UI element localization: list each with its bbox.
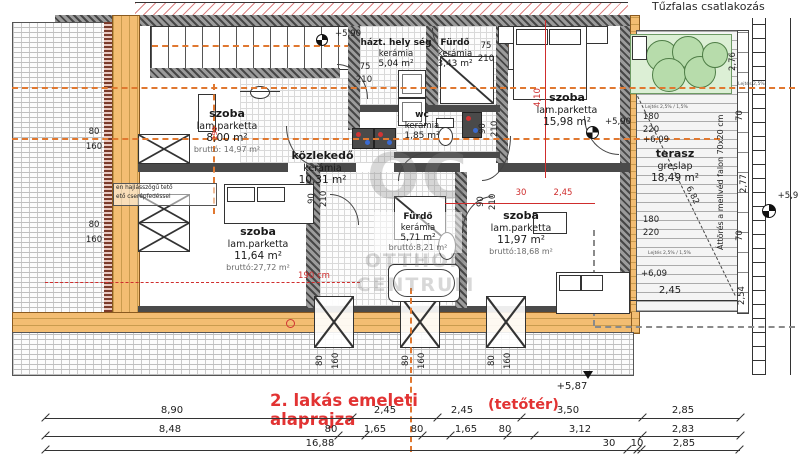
note-roof-line2: ető cserépfedéssel xyxy=(116,193,216,202)
room-area: 8,00 m² xyxy=(162,132,292,144)
level-590-szoba-tr: +5,90 xyxy=(598,118,638,127)
dim-180: 180 xyxy=(636,113,666,122)
level-triangle-icon xyxy=(583,371,593,379)
room-floor: lam.parketta xyxy=(162,121,292,132)
dim-row1-val: 2,45 xyxy=(365,405,405,416)
room-name: szoba xyxy=(162,108,292,121)
dim-277: 2,77 xyxy=(740,166,749,202)
dim-row3-val: 30 xyxy=(598,438,620,449)
note-slope-b: Lejtés 2,5% / 1,5% xyxy=(648,251,706,256)
dim-160: 160 xyxy=(80,236,108,245)
dim-row2-val: 2,83 xyxy=(663,424,703,435)
room-area: 5,71 m² xyxy=(374,233,462,244)
dim-row3-val: 2,85 xyxy=(663,438,705,449)
dim-80: 80 xyxy=(488,348,497,374)
room-name: terasz xyxy=(626,148,724,161)
dim-row3-val: 16,88 xyxy=(298,438,342,449)
room-name: wc xyxy=(392,110,452,121)
room-label-terasz: terasz greslap 18,49 m² xyxy=(626,148,724,185)
nightstand xyxy=(586,26,608,44)
level-marker-icon xyxy=(762,204,776,218)
room-label-wc: wc kerámia 1,85 m² xyxy=(392,110,452,141)
section-marker-line xyxy=(240,91,280,92)
pillow xyxy=(549,29,581,45)
pillow xyxy=(257,187,285,202)
pillow xyxy=(227,187,255,202)
room-floor: lam.parketta xyxy=(196,239,320,250)
tree xyxy=(702,42,728,68)
room-name: Fürdő xyxy=(374,212,462,223)
nightstand xyxy=(498,26,514,44)
purlin-axis-line xyxy=(12,138,720,140)
dim-210: 210 xyxy=(491,112,500,146)
dim-190-red: 190 xyxy=(212,118,219,148)
terrace-245-dimline xyxy=(630,300,737,301)
dim-row1-val: 2,85 xyxy=(663,405,703,416)
level-marker-icon xyxy=(586,126,599,139)
dim-220: 220 xyxy=(636,126,666,135)
level-59-right: +5,9 xyxy=(776,192,800,201)
dim-80: 80 xyxy=(316,348,325,374)
dim-70: 70 xyxy=(736,104,745,128)
dim-90: 90 xyxy=(479,112,488,146)
pillow xyxy=(516,29,548,45)
dim-80: 80 xyxy=(82,128,106,137)
wall-below-stairs xyxy=(150,68,340,78)
roof-window xyxy=(314,296,354,348)
watermark-line2: CENTRUM xyxy=(354,274,478,296)
room-floor: kerámia xyxy=(392,121,452,131)
dim-160: 160 xyxy=(332,346,341,376)
note-tuzfalas: Tűzfalas csatlakozás xyxy=(652,0,798,13)
note-slope-a: Lejtés 2,5% / 1,5% xyxy=(645,105,703,110)
watermark-line1: OTTHON xyxy=(356,250,476,272)
dim-row2-val: 80 xyxy=(492,424,518,435)
dim-410-red: 4,10 xyxy=(534,80,543,116)
dim-row1-val: 3,50 xyxy=(548,405,588,416)
room-label-furdo-b: Fürdő kerámia 5,71 m² bruttó:8,21 m² xyxy=(374,212,462,253)
dim-210: 210 xyxy=(489,185,498,219)
dim-245-red: 2,45 xyxy=(548,189,578,198)
pillow xyxy=(559,275,581,291)
watermark-abbr: OC xyxy=(358,146,478,208)
dim-70: 70 xyxy=(736,224,745,248)
room-area: 11,64 m² xyxy=(196,250,320,262)
planter-box xyxy=(632,36,647,60)
dim-30-red: 30 xyxy=(512,189,530,198)
roof-window xyxy=(486,296,526,348)
dim-160: 160 xyxy=(418,346,427,376)
red-ring-marker xyxy=(286,319,295,328)
note-parapet-opening: Áttörés a mellvéd falon 70x20 cm xyxy=(717,92,725,272)
dim-254: 2,54 xyxy=(738,278,747,314)
level-587-bottom: +5,87 xyxy=(550,381,594,392)
dim-row2-val: 1,65 xyxy=(451,424,481,435)
dim-80: 80 xyxy=(402,348,411,374)
level-609-terasz-top: +6,09 xyxy=(634,136,678,145)
wall-mid-4 xyxy=(498,163,630,172)
purlin-axis-line xyxy=(12,87,795,89)
room-floor: lam.parketta xyxy=(456,223,586,234)
dim-90: 90 xyxy=(477,185,486,219)
dim-245-terrace: 2,45 xyxy=(653,285,687,296)
headroom-190-line xyxy=(45,282,360,283)
existing-wall-ladder xyxy=(752,18,766,375)
room-area: 18,49 m² xyxy=(626,172,724,184)
dim-row2-line xyxy=(45,436,740,437)
dim-row1-val: 2,45 xyxy=(442,405,482,416)
wall-strip-left xyxy=(104,22,112,332)
room-area: 11,97 m² xyxy=(456,234,586,246)
room-name: szoba xyxy=(196,226,320,239)
room-name: szoba xyxy=(508,92,626,105)
room-floor: greslap xyxy=(626,161,724,172)
dim-160: 160 xyxy=(80,143,108,152)
room-floor: lam.parketta xyxy=(508,105,626,116)
dim-row2-val: 80 xyxy=(318,424,344,435)
note-slope-c: Lejtés 2,5% xyxy=(738,82,790,87)
note-roof-box: en hajlásszögű tető ető cserépfedéssel xyxy=(113,183,217,206)
room-label-szoba-bl: szoba lam.parketta 11,64 m² bruttó:27,72… xyxy=(196,226,320,272)
timber-wall-left xyxy=(112,15,140,334)
dim-220: 220 xyxy=(636,229,666,238)
dim-75: 75 xyxy=(476,42,496,51)
roof-window xyxy=(138,222,190,252)
dim-160: 160 xyxy=(504,346,513,376)
headroom-190cm-label: 190 cm xyxy=(292,272,336,281)
dim-row2-val: 3,12 xyxy=(560,424,600,435)
dim-75: 75 xyxy=(355,63,375,72)
dim-210: 210 xyxy=(320,182,329,216)
level-590-top: +5,90 xyxy=(328,30,368,39)
dim-row1-val: 8,90 xyxy=(152,405,192,416)
dim-80: 80 xyxy=(82,221,106,230)
dim-row2-val: 80 xyxy=(404,424,430,435)
room-name: szoba xyxy=(456,210,586,223)
dim-row2-val: 8,48 xyxy=(150,424,190,435)
dim-row2-val: 1,65 xyxy=(360,424,390,435)
dim-180: 180 xyxy=(636,216,666,225)
level-marker-icon xyxy=(316,34,328,46)
dim-210: 210 xyxy=(352,76,376,85)
dim-276: 2,76 xyxy=(729,44,738,80)
level-609-terasz-bottom: +6,09 xyxy=(632,270,676,279)
dim-210: 210 xyxy=(474,55,498,64)
room-floor: kerámia xyxy=(374,223,462,233)
washing-machine xyxy=(398,70,426,98)
dim-row1-line xyxy=(45,418,740,419)
roof-window xyxy=(400,296,440,348)
dim-90: 90 xyxy=(308,182,317,216)
note-roof-line1: en hajlásszögű tető xyxy=(116,184,216,193)
roof-projection-dash-h xyxy=(595,326,795,328)
dim-row3-val: 10 xyxy=(626,438,648,449)
masonry-wall-left xyxy=(12,22,106,334)
room-label-szoba-tl: szoba lam.parketta 8,00 m² bruttó: 14,97… xyxy=(162,108,292,154)
pillow xyxy=(581,275,603,291)
floor-plan-canvas: szoba lam.parketta 8,00 m² bruttó: 14,97… xyxy=(0,0,800,454)
